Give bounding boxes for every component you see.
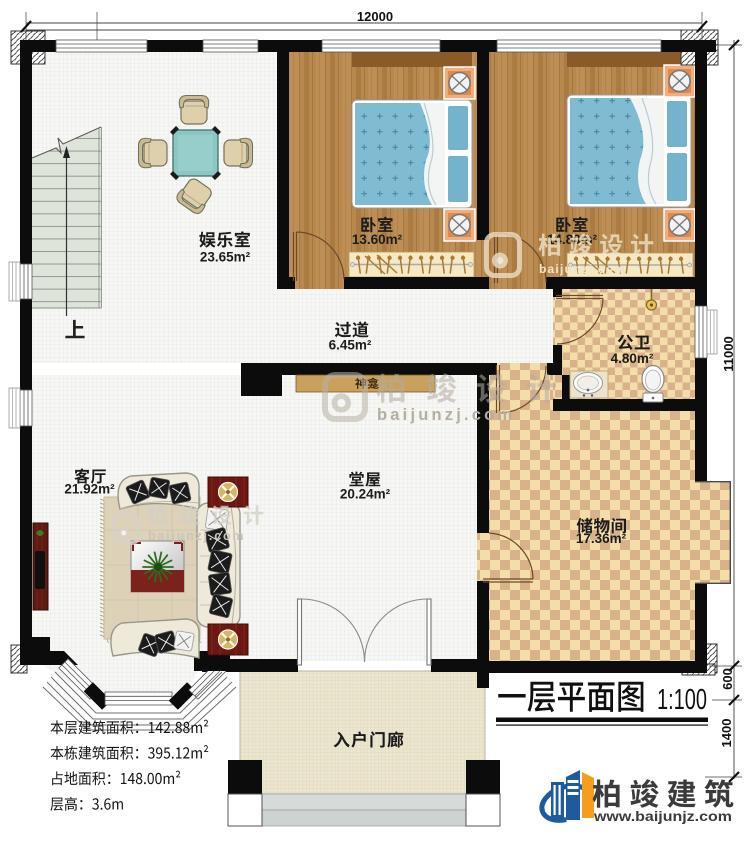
svg-text:4.80m²: 4.80m² (611, 351, 654, 366)
svg-text:20.24m²: 20.24m² (340, 487, 391, 502)
svg-text:17.36m²: 17.36m² (576, 531, 627, 546)
svg-text:1400: 1400 (719, 719, 734, 748)
svg-text:baijunzj.com: baijunzj.com (148, 529, 245, 543)
svg-text:12000: 12000 (357, 9, 393, 24)
svg-text:baijunzj.com: baijunzj.com (539, 262, 626, 276)
svg-text:6.45m²: 6.45m² (329, 338, 372, 353)
svg-text:13.60m²: 13.60m² (352, 232, 403, 247)
svg-text:21.92m²: 21.92m² (64, 482, 115, 497)
svg-text:23.65m²: 23.65m² (200, 250, 251, 265)
svg-text:baijunzj.com: baijunzj.com (377, 406, 515, 424)
svg-text:600: 600 (720, 668, 735, 690)
svg-text:11000: 11000 (721, 336, 736, 371)
svg-text:1:100: 1:100 (657, 684, 707, 716)
svg-text:www.baijunjz.com: www.baijunjz.com (593, 808, 732, 824)
